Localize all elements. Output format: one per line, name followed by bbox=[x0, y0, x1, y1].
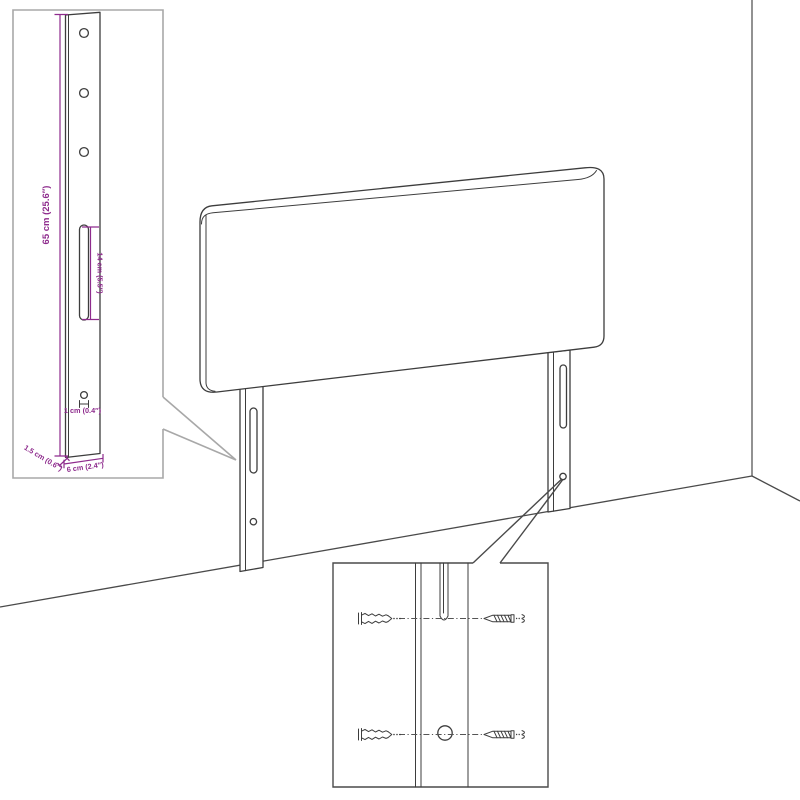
hardware-leg-strip bbox=[416, 563, 469, 787]
screw-icon bbox=[484, 731, 524, 739]
leg-screw-hole-3 bbox=[80, 148, 89, 157]
leg-screw-hole-2 bbox=[80, 89, 89, 98]
dimension-label-leg-height: 65 cm (25.6″) bbox=[41, 186, 52, 245]
leg-inset-leader-lines bbox=[163, 397, 236, 460]
hardware-detail-inset bbox=[333, 479, 563, 787]
leg-strip-lines bbox=[416, 563, 469, 787]
headboard-panel bbox=[200, 167, 604, 392]
dimension-label-leg-width: 6 cm (2.4″) bbox=[66, 460, 105, 474]
panel-outline bbox=[200, 167, 604, 392]
right-leg-hole bbox=[560, 473, 566, 479]
left-leg-slot bbox=[250, 408, 257, 473]
left-leg-hole bbox=[250, 519, 256, 525]
screw-icon bbox=[484, 615, 524, 623]
headboard-leg-left bbox=[240, 386, 263, 572]
leg-detail-drawing bbox=[66, 12, 101, 457]
wall-plug-icon bbox=[359, 729, 401, 741]
leg-screw-hole-1 bbox=[80, 29, 89, 38]
floor-line-left bbox=[0, 476, 752, 607]
leg-small-hole bbox=[81, 392, 88, 399]
hardware-inset-leader-lines bbox=[473, 479, 563, 563]
diagram-canvas: 65 cm (25.6″) 14 cm (5.5″) 1 cm (0.4″) 1… bbox=[0, 0, 800, 800]
strip-slot bbox=[440, 563, 448, 620]
headboard-leg-right bbox=[548, 350, 570, 512]
right-leg-slot bbox=[560, 365, 567, 428]
strip-hole bbox=[438, 726, 452, 740]
dimension-label-hole-diameter: 1 cm (0.4″) bbox=[64, 406, 102, 415]
dimension-label-slot-length: 14 cm (5.5″) bbox=[96, 252, 105, 294]
leg-detail-slot bbox=[80, 225, 89, 320]
headboard-diagram: 65 cm (25.6″) 14 cm (5.5″) 1 cm (0.4″) 1… bbox=[0, 0, 800, 800]
dimension-label-leg-thickness: 1.5 cm (0.6″) bbox=[22, 443, 64, 473]
floor-line-right bbox=[752, 476, 800, 501]
wall-plug-icon bbox=[359, 613, 401, 625]
